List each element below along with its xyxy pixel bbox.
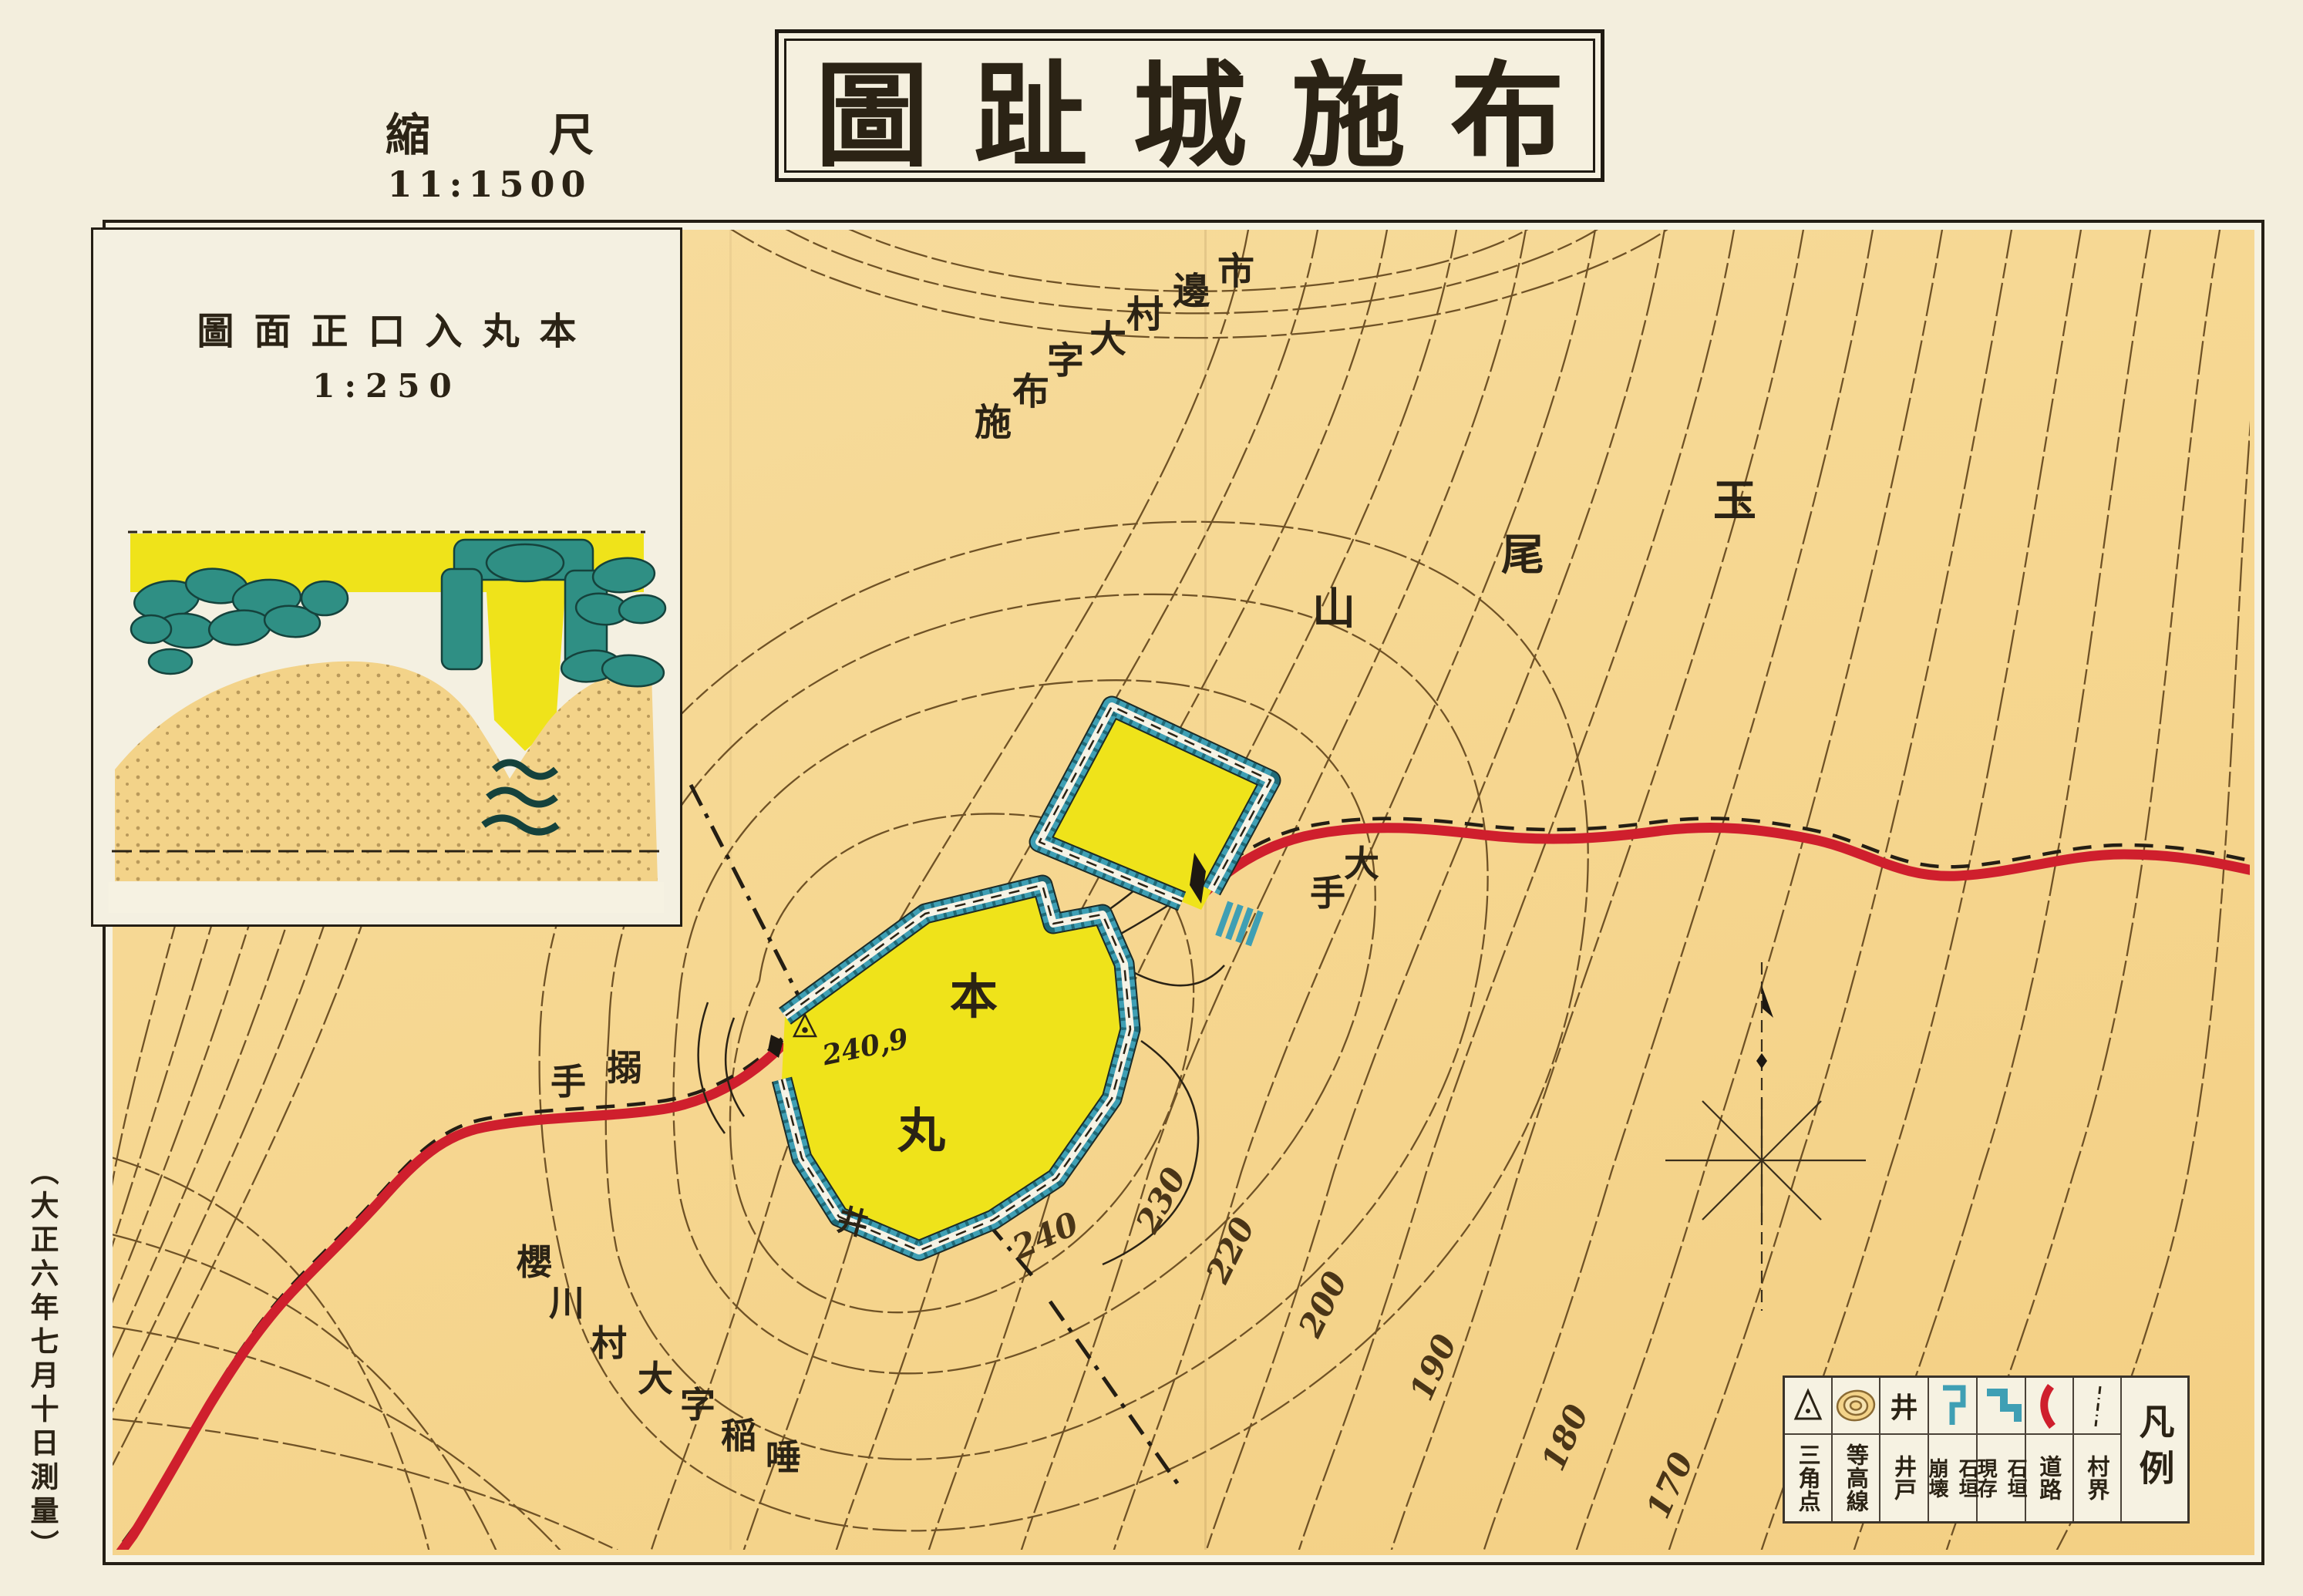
inset-title: 圖面正口入丸本	[93, 301, 680, 355]
inset-hill-texture	[115, 662, 658, 881]
wall-existing-symbol-icon	[1978, 1378, 2025, 1435]
label-ote-gate: 手	[1310, 875, 1345, 911]
label-mountain: 山	[1312, 588, 1355, 631]
label-honmaru: 丸	[897, 1107, 945, 1155]
legend-title: 凡例	[2122, 1378, 2187, 1521]
survey-note: （大正六年七月十日測量）	[22, 1157, 63, 1588]
label-district-lower: 櫻	[517, 1244, 552, 1280]
village-boundary-symbol-icon	[2074, 1378, 2120, 1435]
label-district-lower: 川	[549, 1285, 584, 1321]
scale-label-char: 尺	[549, 99, 594, 163]
inset-bottom-fade	[109, 882, 664, 913]
scale-label: 縮 尺	[386, 99, 594, 163]
label-district-lower: 大	[638, 1361, 673, 1396]
label-district-lower: 稲	[721, 1418, 756, 1453]
label-district-lower: 村	[591, 1325, 627, 1361]
label-district-upper: 村	[1126, 296, 1163, 333]
label-district-upper: 施	[975, 404, 1012, 441]
title-box-inner: 圖趾城施布	[784, 39, 1595, 173]
label-district-lower: 字	[680, 1387, 715, 1423]
scale-value: 11:1500	[362, 163, 617, 205]
label-district-upper: 字	[1047, 342, 1084, 379]
map-title: 圖趾城施布	[770, 23, 1609, 189]
legend-item-contour: 等高線	[1833, 1378, 1880, 1521]
legend-box: 三角点 等高線 井 井戸 石垣 崩壊	[1783, 1375, 2190, 1524]
road-symbol-icon	[2026, 1378, 2072, 1435]
label-mountain: 玉	[1713, 480, 1756, 523]
legend-item-road: 道路	[2026, 1378, 2074, 1521]
label-ote-gate: 大	[1344, 846, 1379, 881]
legend-item-triangulation: 三角点	[1785, 1378, 1833, 1521]
label-karamete-gate: 搦	[607, 1050, 642, 1086]
legend-item-village-boundary: 村界	[2074, 1378, 2122, 1521]
inset-box: 圖面正口入丸本 1:250	[91, 227, 682, 927]
label-honmaru: 本	[950, 973, 998, 1021]
label-district-lower: 唾	[766, 1439, 801, 1475]
legend-item-well: 井 井戸	[1880, 1378, 1928, 1521]
well-symbol-icon: 井	[1880, 1378, 1927, 1435]
label-district-upper: 市	[1217, 253, 1254, 290]
label-district-upper: 布	[1012, 373, 1049, 410]
label-district-upper: 大	[1089, 321, 1126, 358]
inset-scale: 1:250	[93, 367, 680, 405]
label-mountain: 尾	[1501, 534, 1544, 577]
label-district-upper: 邊	[1173, 273, 1210, 310]
legend-item-wall-collapsed: 石垣 崩壊	[1929, 1378, 1978, 1521]
triangulation-symbol-icon	[1785, 1378, 1831, 1435]
contour-symbol-icon	[1833, 1378, 1879, 1435]
map-sheet: 圖趾城施布 縮 尺 11:1500	[0, 0, 2303, 1596]
legend-item-wall-existing: 石垣 現存	[1978, 1378, 2026, 1521]
title-box: 圖趾城施布	[775, 29, 1604, 182]
label-karamete-gate: 手	[550, 1064, 586, 1099]
scale-label-char: 縮	[386, 99, 430, 163]
wall-collapsed-symbol-icon	[1929, 1378, 1976, 1435]
